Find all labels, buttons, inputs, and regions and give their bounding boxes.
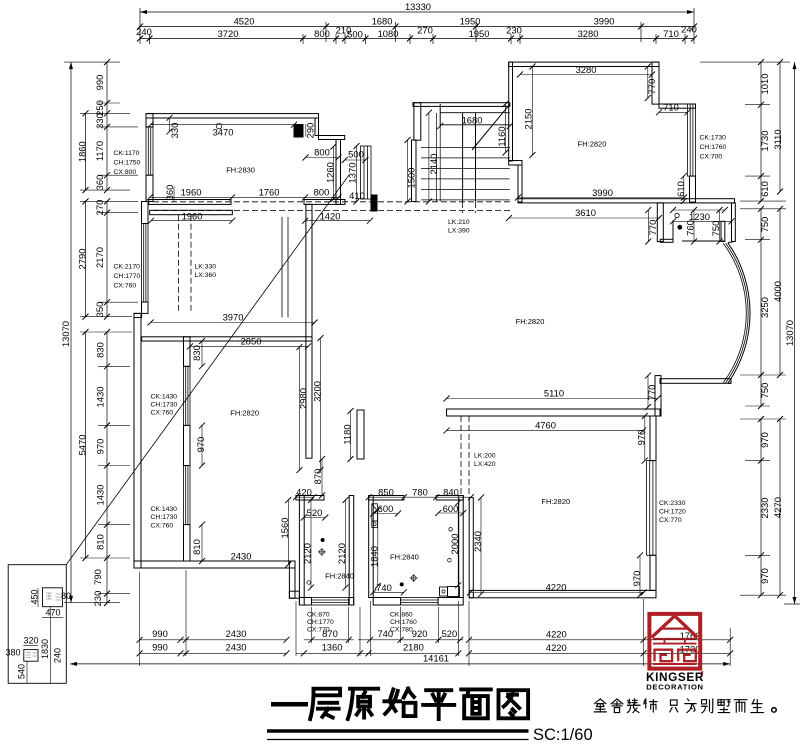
svg-text:770: 770 [646,385,657,401]
svg-text:1500: 1500 [406,168,417,189]
svg-text:CK:860: CK:860 [390,611,413,618]
svg-text:4520: 4520 [234,16,255,27]
svg-text:14161: 14161 [423,652,449,663]
svg-text:830: 830 [95,342,106,358]
svg-text:1960: 1960 [181,187,202,198]
svg-text:3470: 3470 [213,127,234,138]
svg-text:CK:1170: CK:1170 [114,150,140,157]
svg-text:830: 830 [191,345,202,361]
svg-text:4220: 4220 [546,582,567,593]
svg-text:1430: 1430 [95,485,106,506]
svg-text:610: 610 [759,181,770,197]
svg-text:2850: 2850 [241,335,262,346]
svg-text:1960: 1960 [182,211,203,222]
svg-text:1260: 1260 [325,162,336,183]
svg-text:850: 850 [378,486,394,497]
svg-text:600: 600 [378,503,394,514]
svg-text:CX:700: CX:700 [700,154,723,161]
svg-text:CX:760: CX:760 [114,283,137,290]
svg-text:4220: 4220 [546,642,567,653]
svg-text:5470: 5470 [77,435,88,456]
svg-text:990: 990 [152,641,168,652]
svg-text:CH:1730: CH:1730 [151,514,178,521]
svg-text:2000: 2000 [449,534,460,555]
svg-text:1680: 1680 [462,115,483,126]
svg-text:540: 540 [17,664,27,679]
svg-text:1730: 1730 [759,131,770,152]
svg-text:CX:760: CX:760 [151,523,174,530]
svg-text:CH:1750: CH:1750 [114,160,141,167]
svg-text:500: 500 [348,149,364,160]
svg-text:970: 970 [195,437,206,453]
svg-text:610: 610 [675,181,686,197]
svg-text:800: 800 [314,28,330,39]
svg-text:2330: 2330 [759,498,770,519]
svg-text:3200: 3200 [311,381,322,402]
svg-text:870: 870 [312,469,323,485]
svg-text:CH:1730: CH:1730 [151,401,178,408]
svg-text:CH:1760: CH:1760 [390,619,417,626]
svg-text:3110: 3110 [772,129,783,149]
svg-text:1840: 1840 [369,546,380,567]
svg-text:330: 330 [94,113,105,129]
svg-text:3250: 3250 [759,297,770,318]
svg-text:970: 970 [631,571,642,587]
svg-text:710: 710 [663,102,679,113]
svg-text:3970: 3970 [223,312,244,323]
svg-text:600: 600 [443,503,459,514]
svg-text:240: 240 [136,26,152,37]
svg-text:2430: 2430 [226,628,247,639]
svg-text:380: 380 [5,648,20,658]
svg-text:1950: 1950 [469,28,490,39]
svg-text:800: 800 [314,187,330,198]
svg-text:810: 810 [191,539,202,555]
svg-text:CX:770: CX:770 [659,517,682,524]
svg-text:350: 350 [94,302,105,318]
svg-text:750: 750 [759,217,770,233]
svg-text:2170: 2170 [94,247,105,268]
svg-text:1080: 1080 [378,28,399,39]
svg-text:CK:1430: CK:1430 [151,506,178,513]
svg-text:500: 500 [347,29,363,40]
svg-text:4220: 4220 [546,628,567,639]
svg-text:2430: 2430 [231,550,252,561]
svg-text:800: 800 [314,147,330,158]
svg-text:DECORATION: DECORATION [646,683,703,692]
svg-text:2120: 2120 [302,543,313,564]
svg-text:CK:870: CK:870 [307,611,330,618]
svg-text:270: 270 [417,25,433,36]
svg-text:290: 290 [305,123,316,139]
svg-text:740: 740 [376,582,392,593]
svg-text:230: 230 [506,25,522,36]
svg-text:CK:2330: CK:2330 [659,500,686,507]
svg-text:990: 990 [152,628,168,639]
svg-text:1680: 1680 [372,16,393,27]
svg-text:240: 240 [681,24,697,35]
svg-text:3610: 3610 [575,207,596,218]
svg-text:2180: 2180 [403,641,424,652]
svg-text:FH:2820: FH:2820 [578,140,607,149]
svg-text:330: 330 [169,123,180,139]
svg-text:1360: 1360 [322,641,343,652]
svg-text:1430: 1430 [95,387,106,408]
svg-text:770: 770 [647,220,658,236]
svg-text:780: 780 [412,486,428,497]
svg-text:1170: 1170 [94,141,105,161]
svg-text:1950: 1950 [460,16,481,27]
svg-text:920: 920 [412,628,428,639]
svg-text:450: 450 [30,589,40,604]
svg-text:990: 990 [94,75,105,91]
svg-text:FH:2820: FH:2820 [516,317,545,326]
svg-text:4760: 4760 [535,419,556,430]
svg-text:1830: 1830 [40,639,50,659]
svg-text:FH:2820: FH:2820 [541,497,570,506]
svg-text:LX:420: LX:420 [474,461,496,468]
svg-text:2980: 2980 [298,388,309,409]
svg-text:13070: 13070 [784,320,795,346]
svg-text:LK:200: LK:200 [474,453,496,460]
svg-text:2150: 2150 [523,109,534,130]
svg-text:CX:800: CX:800 [114,169,137,176]
svg-text:LK:330: LK:330 [195,264,217,271]
svg-text:CH:1770: CH:1770 [114,273,141,280]
svg-text:810: 810 [95,534,106,550]
svg-text:790: 790 [92,569,103,585]
svg-text:CH:1760: CH:1760 [700,144,727,151]
svg-text:750: 750 [759,383,770,399]
svg-text:320: 320 [23,636,38,646]
svg-text:LX:390: LX:390 [448,228,470,235]
svg-text:970: 970 [759,568,770,584]
svg-text:3990: 3990 [592,187,613,198]
svg-text:410: 410 [349,190,365,201]
svg-text:520: 520 [442,628,458,639]
svg-text:CX:780: CX:780 [390,626,413,633]
svg-text:3990: 3990 [594,16,615,27]
svg-text:420: 420 [296,486,312,497]
svg-text:CK:1430: CK:1430 [151,393,178,400]
svg-text:230: 230 [92,591,103,607]
svg-text:13070: 13070 [60,321,71,347]
svg-text:3280: 3280 [576,64,597,75]
svg-text:760: 760 [685,220,696,236]
svg-text:2120: 2120 [336,543,347,564]
svg-text:1010: 1010 [759,74,770,95]
svg-text:970: 970 [95,439,106,455]
svg-text:CK:2170: CK:2170 [114,264,141,271]
svg-text:360: 360 [164,185,175,201]
svg-text:520: 520 [307,507,323,518]
svg-text:FH:2840: FH:2840 [390,553,419,562]
svg-text:1180: 1180 [342,424,353,444]
svg-text:FH:2830: FH:2830 [226,166,255,175]
svg-text:360: 360 [94,175,105,191]
svg-text:470: 470 [45,608,60,618]
svg-text:270: 270 [94,200,105,216]
svg-text:1420: 1420 [320,211,341,222]
svg-text:CH:1720: CH:1720 [659,509,686,516]
svg-text:1560: 1560 [279,518,290,539]
svg-text:2790: 2790 [77,249,88,270]
svg-text:840: 840 [443,486,459,497]
svg-text:2430: 2430 [226,641,247,652]
svg-text:770: 770 [646,79,657,95]
svg-text:970: 970 [759,432,770,448]
svg-text:CK:1730: CK:1730 [700,135,727,142]
svg-text:1860: 1860 [77,141,88,162]
svg-text:CH:1770: CH:1770 [307,619,334,626]
svg-text:FH:2840: FH:2840 [325,572,354,581]
svg-text:1160: 1160 [496,126,507,146]
svg-text:CX:770: CX:770 [307,626,330,633]
svg-text:FH:2820: FH:2820 [230,409,259,418]
svg-text:LK:210: LK:210 [448,219,470,226]
svg-text:4270: 4270 [772,497,783,518]
svg-text:4000: 4000 [772,281,783,302]
svg-text:LX:360: LX:360 [195,272,217,279]
svg-text:13330: 13330 [405,1,431,12]
svg-text:80: 80 [61,591,71,601]
svg-text:SC:1/60: SC:1/60 [533,726,593,744]
svg-text:CX:760: CX:760 [151,410,174,417]
svg-text:1370: 1370 [347,163,358,184]
svg-text:5110: 5110 [544,387,564,398]
svg-text:1760: 1760 [259,187,280,198]
svg-text:240: 240 [53,648,63,663]
svg-text:970: 970 [636,430,647,446]
svg-text:2340: 2340 [472,531,483,552]
svg-text:3280: 3280 [578,28,599,39]
svg-text:750: 750 [710,221,721,237]
svg-text:710: 710 [663,28,679,39]
svg-text:2140: 2140 [428,154,439,175]
svg-text:3720: 3720 [218,28,239,39]
